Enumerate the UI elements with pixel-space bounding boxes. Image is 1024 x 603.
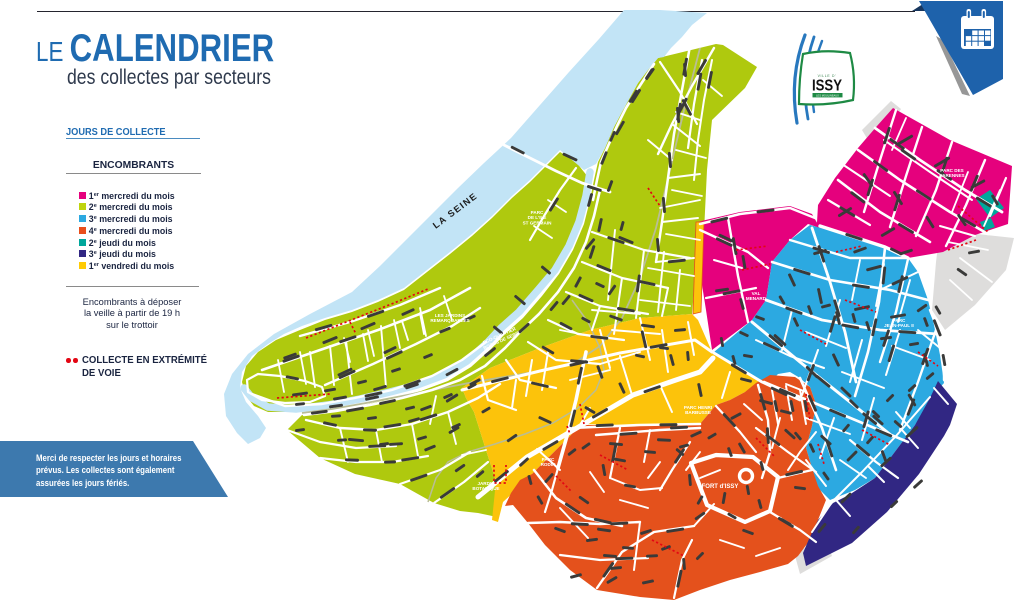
svg-text:PARC DESVARENNES: PARC DESVARENNES — [939, 168, 964, 178]
svg-text:LES MOULINEAUX: LES MOULINEAUX — [816, 93, 839, 97]
svg-text:FORT d'ISSY: FORT d'ISSY — [702, 484, 739, 490]
svg-text:PARC HENRIBARBUSSE: PARC HENRIBARBUSSE — [684, 405, 712, 415]
svg-text:LES JARDINSREMARQUABLES: LES JARDINSREMARQUABLES — [430, 313, 469, 323]
svg-text:ISSY: ISSY — [812, 78, 842, 95]
svg-text:PARCOMNISPORTS: PARCOMNISPORTS — [277, 473, 308, 483]
svg-text:PARCRODIN: PARCRODIN — [541, 457, 556, 467]
